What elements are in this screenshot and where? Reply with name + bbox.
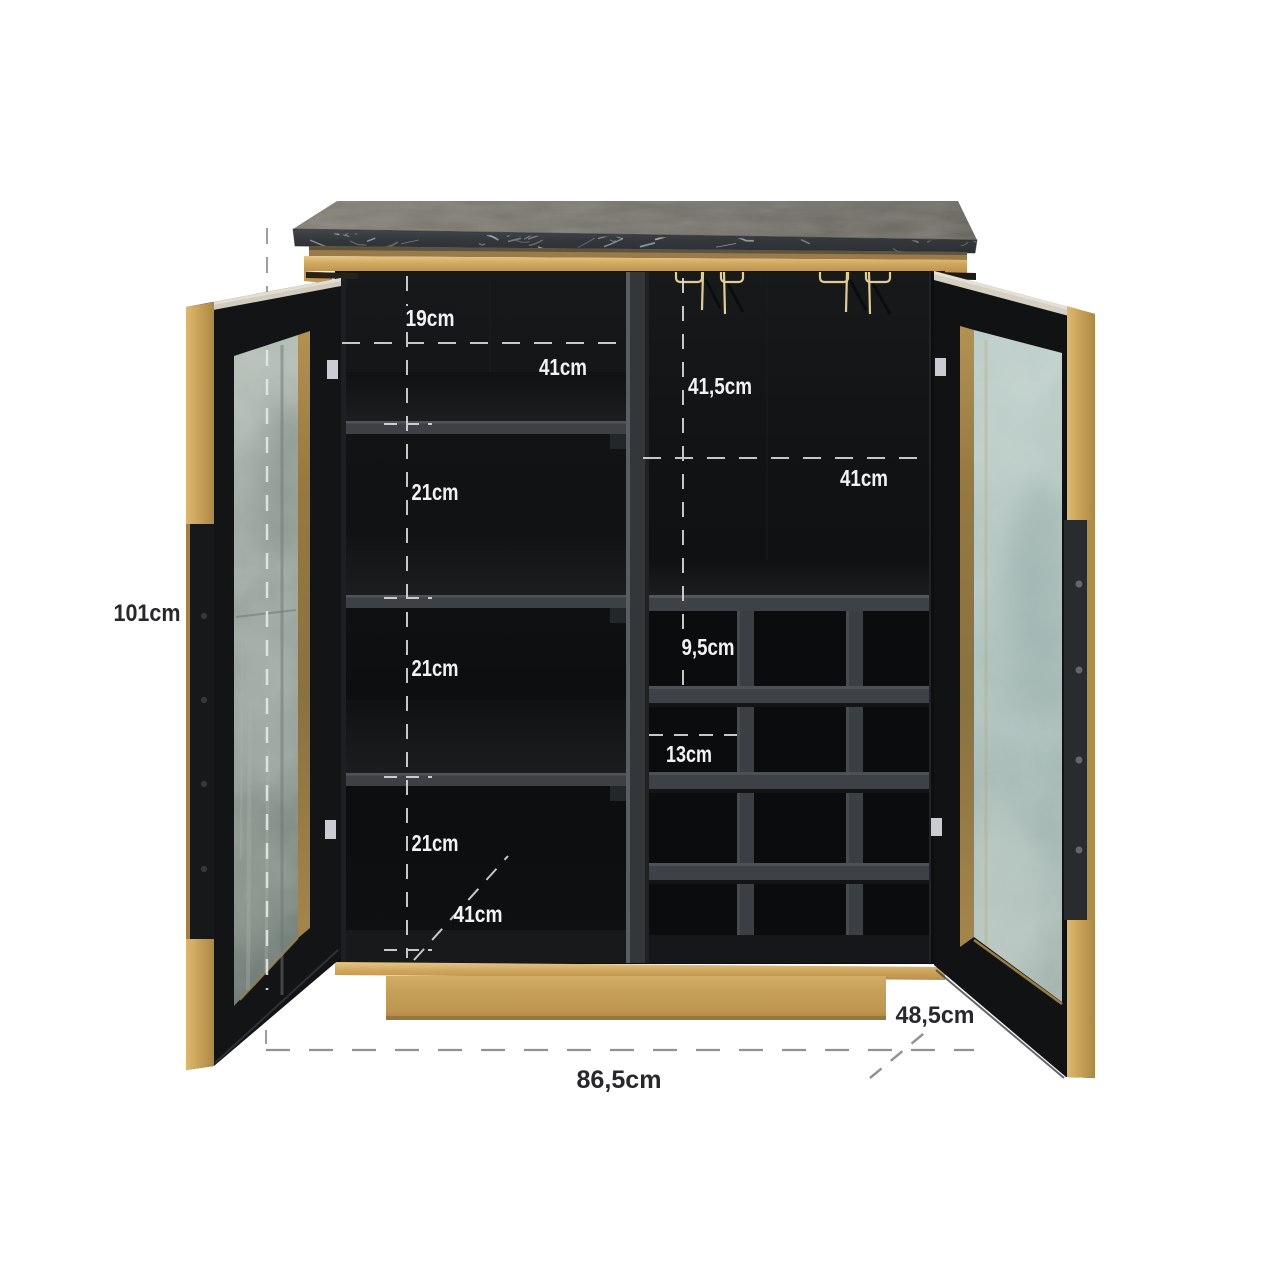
- svg-text:9,5cm: 9,5cm: [682, 634, 735, 660]
- svg-text:48,5cm: 48,5cm: [896, 1002, 975, 1029]
- svg-text:21cm: 21cm: [412, 655, 459, 681]
- svg-text:21cm: 21cm: [412, 830, 459, 856]
- svg-text:41,5cm: 41,5cm: [688, 373, 752, 399]
- svg-text:41cm: 41cm: [454, 901, 503, 927]
- svg-text:41cm: 41cm: [840, 465, 888, 491]
- svg-text:86,5cm: 86,5cm: [577, 1066, 662, 1094]
- svg-text:19cm: 19cm: [406, 305, 455, 331]
- svg-text:21cm: 21cm: [412, 479, 459, 505]
- svg-text:101cm: 101cm: [114, 600, 181, 627]
- svg-text:41cm: 41cm: [539, 354, 587, 380]
- svg-text:13cm: 13cm: [666, 741, 712, 767]
